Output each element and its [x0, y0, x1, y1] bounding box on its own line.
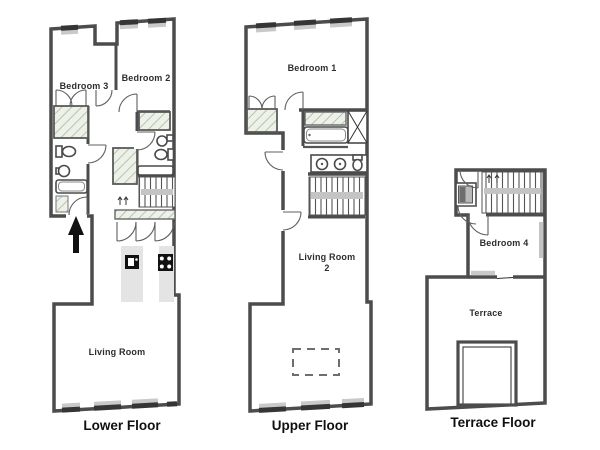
lower-floor-plan: Bedroom 3 Bedroom 2 Living Room Lower Fl… — [51, 19, 179, 433]
room-label-terrace: Terrace — [469, 308, 502, 318]
room-label-bedroom-2: Bedroom 2 — [122, 73, 171, 83]
stove-icon — [158, 254, 173, 271]
stairs — [309, 177, 365, 215]
wardrobe-strip — [539, 222, 544, 258]
closet-hatch — [54, 106, 88, 138]
room-label-living-room-2: Living Room — [299, 252, 356, 262]
upper-floor-plan: Bedroom 1 Living Room 2 Upper Floor — [246, 19, 371, 433]
closet — [456, 183, 476, 206]
toilet-icon — [155, 149, 174, 160]
stairs — [482, 172, 543, 213]
caption-upper-floor: Upper Floor — [272, 418, 349, 433]
room-label-bedroom-3: Bedroom 3 — [60, 81, 109, 91]
floor-plans-svg: Bedroom 3 Bedroom 2 Living Room Lower Fl… — [0, 0, 600, 450]
room-label-living-room: Living Room — [89, 347, 146, 357]
hall-hatch-strip — [115, 210, 175, 219]
toilet-icon — [353, 155, 362, 171]
bathtub-icon — [304, 127, 348, 143]
room-label-bedroom-1: Bedroom 1 — [288, 63, 337, 73]
closet-hatch — [139, 112, 170, 130]
stair-rail — [484, 188, 541, 194]
room-label-bedroom-4: Bedroom 4 — [480, 238, 529, 248]
sink-icon — [335, 159, 346, 170]
closet-hatch — [56, 196, 68, 212]
upper-bathroom — [304, 111, 367, 172]
terrace-floor-plan: Bedroom 4 Terrace Terrace Floor — [427, 170, 545, 430]
room-label-living-room-2-number: 2 — [324, 263, 329, 273]
closet-hatch — [247, 109, 277, 132]
table-outline — [293, 349, 339, 375]
kitchen-sink-icon — [125, 255, 139, 269]
toilet-icon — [56, 146, 76, 157]
bathroom2-fixtures — [138, 135, 174, 175]
bathtub-icon — [138, 166, 173, 175]
bathroom-fixtures — [56, 146, 87, 193]
kitchen — [121, 246, 174, 302]
sink-icon — [157, 135, 173, 146]
sink-icon — [56, 166, 70, 177]
terrace-opening — [458, 342, 516, 405]
bathtub-icon — [56, 180, 87, 193]
up-direction-marks — [118, 197, 128, 205]
floor-plan-sheet: Bedroom 3 Bedroom 2 Living Room Lower Fl… — [0, 0, 600, 450]
shaft-x-icon — [348, 111, 367, 143]
stair-rail — [311, 192, 363, 199]
stair-rail — [141, 189, 173, 195]
closet-hatch — [305, 112, 346, 125]
caption-lower-floor: Lower Floor — [83, 418, 161, 433]
closet-hatch — [113, 148, 137, 184]
vanity — [311, 155, 367, 172]
sink-icon — [317, 159, 328, 170]
entrance-arrow-icon — [68, 216, 84, 253]
caption-terrace-floor: Terrace Floor — [450, 415, 536, 430]
